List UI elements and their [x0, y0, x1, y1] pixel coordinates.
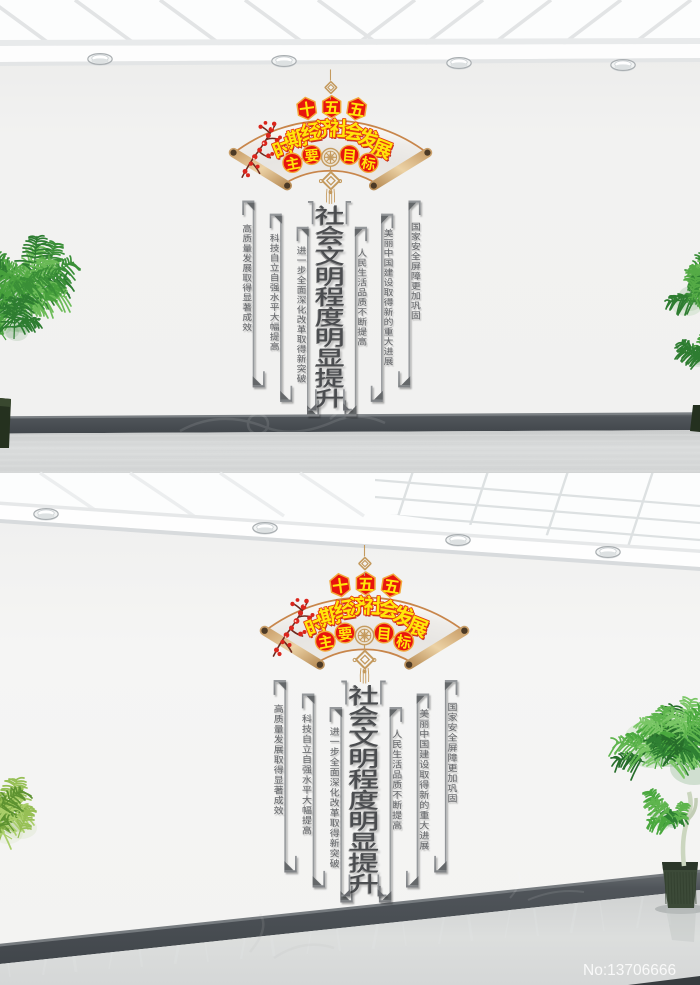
- svg-text:No:13706666: No:13706666: [583, 962, 676, 979]
